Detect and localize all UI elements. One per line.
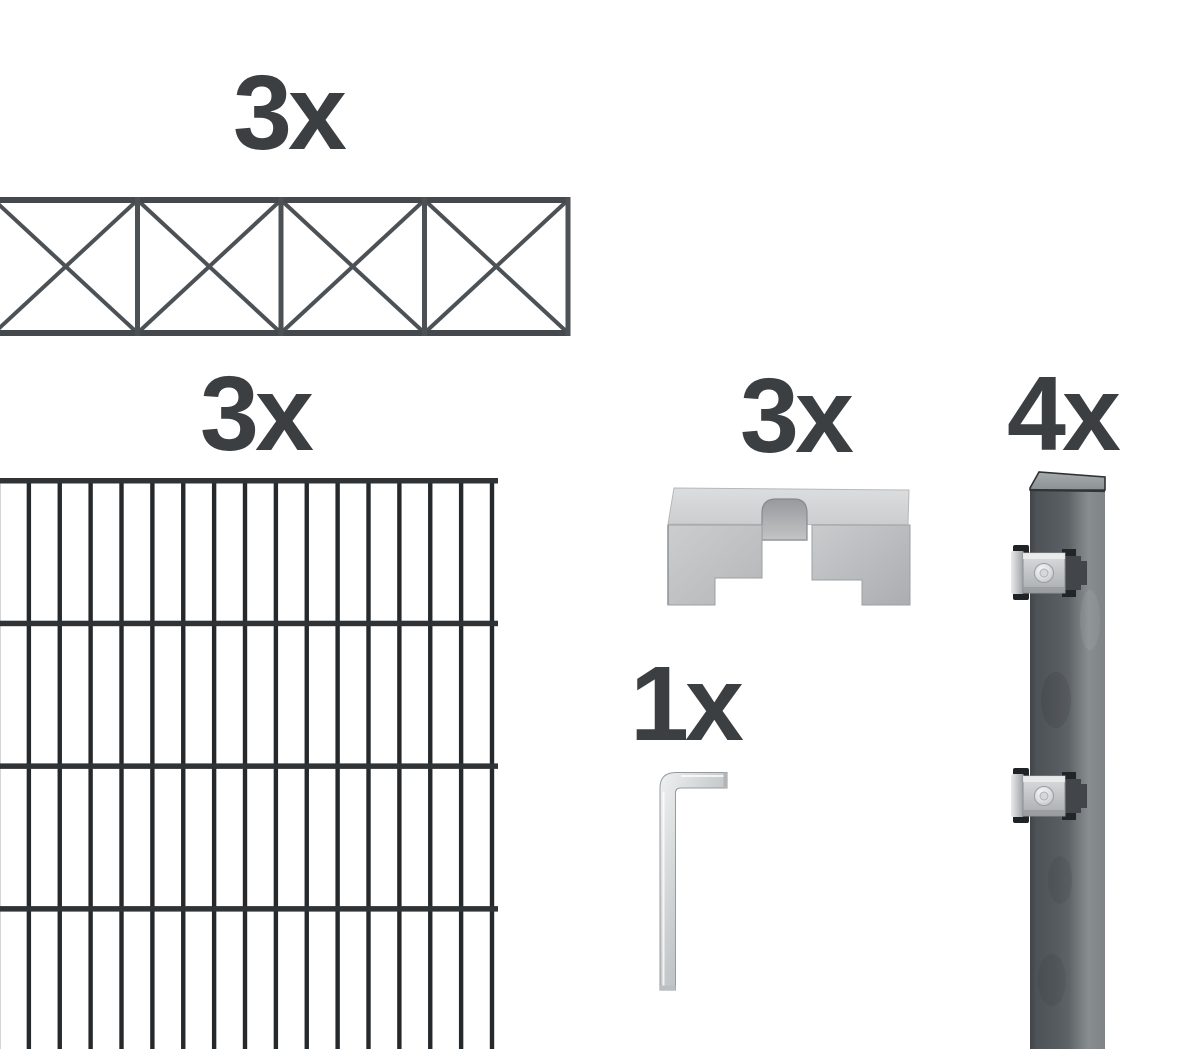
ornament-bottom-rail [0, 330, 568, 336]
post-clamp-lower [1011, 768, 1087, 823]
hex-key-bottom-face [660, 986, 676, 991]
bracket-hump-opening [762, 499, 807, 540]
post-mottle [1080, 590, 1100, 650]
bracket-left-block [668, 525, 762, 605]
bracket-right-block [812, 525, 910, 605]
post-mottle [1038, 954, 1066, 1006]
ornament-top-rail [0, 197, 568, 203]
fence-kit-illustration [0, 0, 1200, 1049]
post-top-cap [1030, 472, 1105, 490]
post-mottle [1041, 672, 1071, 728]
hex-key-body [660, 773, 727, 991]
mesh-horizontal-rail [0, 621, 498, 627]
hex-key-end-face [724, 773, 728, 789]
fence-post-illustration [1011, 472, 1105, 1049]
mesh-panel-illustration [0, 478, 498, 1049]
clamp-back-block [1064, 556, 1087, 590]
mesh-horizontal-rail [0, 763, 498, 769]
clamp-shadow [1023, 587, 1065, 593]
ornament-panel-illustration [0, 197, 571, 336]
clamp-side-wrap [1011, 551, 1024, 594]
hex-key-illustration [660, 773, 727, 991]
ornament-divider [279, 197, 284, 336]
post-clamp [1011, 545, 1087, 600]
clamp-screw-center [1040, 569, 1048, 577]
post-cap-front-edge [1030, 490, 1105, 491]
mesh-horizontal-rail [0, 906, 498, 912]
ornament-divider [422, 197, 427, 336]
ornament-divider [566, 197, 571, 336]
clamp-highlight [1023, 553, 1065, 559]
fence-kit-product-image: 3x 3x 3x 4x 1x [0, 0, 1200, 1049]
cover-clamp-illustration [668, 488, 910, 605]
mesh-horizontal-rail [0, 478, 498, 484]
ornament-divider [135, 197, 140, 336]
post-mottle [1048, 856, 1072, 904]
